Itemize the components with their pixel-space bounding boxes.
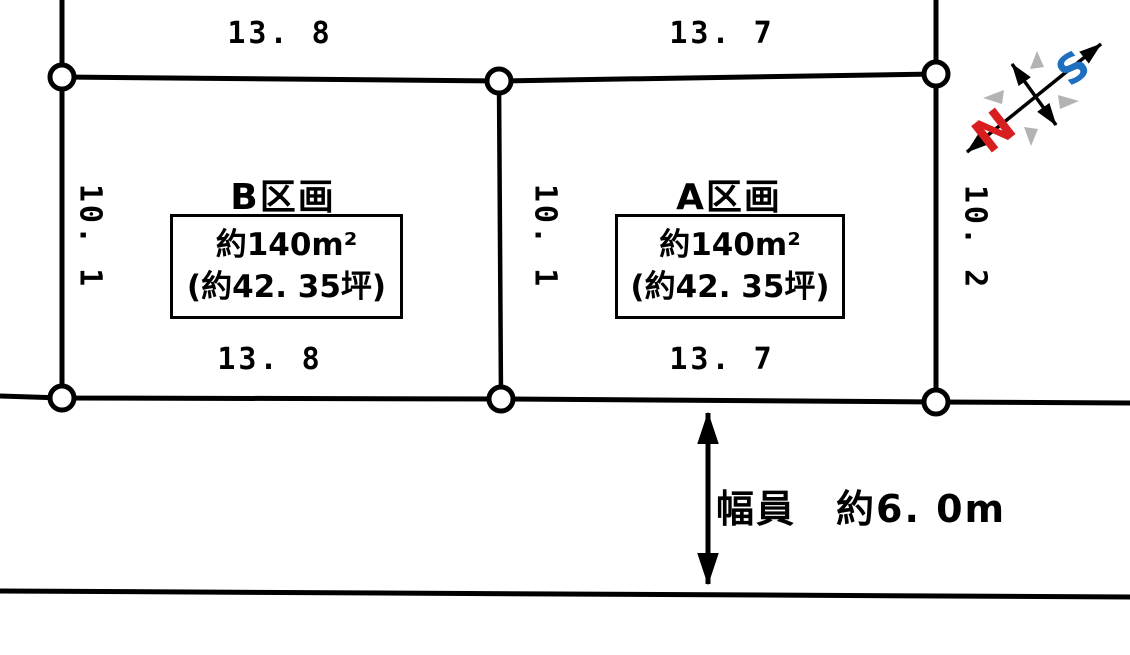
compass-tick-top-icon [1030, 51, 1044, 69]
compass-rose: N S [962, 42, 1101, 164]
middle-boundary-line [499, 81, 501, 399]
road-upper-edge-line [0, 396, 1130, 403]
road-lower-edge-line [0, 591, 1130, 597]
compass-tick-bottom-icon [1024, 127, 1038, 146]
road-width-label: 幅員 約6. 0m [716, 478, 1006, 533]
dimension-label-parcel-b-top: 13. 8 [180, 16, 380, 51]
parcel-b-area-tsubo: (約42. 35坪) [187, 267, 386, 309]
dimension-label-parcel-a-top: 13. 7 [622, 16, 822, 51]
parcel-a-title: A区画 [609, 168, 849, 220]
dimension-label-middle-side: 10. 1 [528, 157, 563, 317]
diagram-linework: N S [0, 0, 1130, 655]
dimension-label-parcel-a-bottom: 13. 7 [622, 342, 822, 377]
dimension-label-right-side: 10. 2 [958, 158, 993, 318]
parcel-a-area-tsubo: (約42. 35坪) [630, 267, 829, 309]
land-plot-diagram: N S 13. 8 13. 7 13. 8 13. 7 10. 1 10. 1 … [0, 0, 1130, 655]
survey-point-top-middle [487, 69, 511, 93]
survey-point-bottom-left [50, 386, 74, 410]
survey-point-top-left [50, 65, 74, 89]
survey-point-bottom-right [924, 390, 948, 414]
parcel-a-area-box: 約140m² (約42. 35坪) [615, 214, 845, 319]
parcel-b-title: B区画 [163, 168, 403, 220]
parcel-b-area-m2: 約140m² [216, 225, 358, 267]
compass-north-label: N [962, 98, 1026, 164]
dimension-label-left-side: 10. 1 [73, 157, 108, 317]
parcel-a-area-m2: 約140m² [659, 225, 801, 267]
compass-tick-right-icon [1058, 95, 1079, 109]
survey-point-top-right [924, 62, 948, 86]
survey-point-bottom-middle [489, 387, 513, 411]
compass-cross-axis [1012, 64, 1056, 125]
parcel-b-area-box: 約140m² (約42. 35坪) [170, 214, 403, 319]
dimension-label-parcel-b-bottom: 13. 8 [170, 342, 370, 377]
